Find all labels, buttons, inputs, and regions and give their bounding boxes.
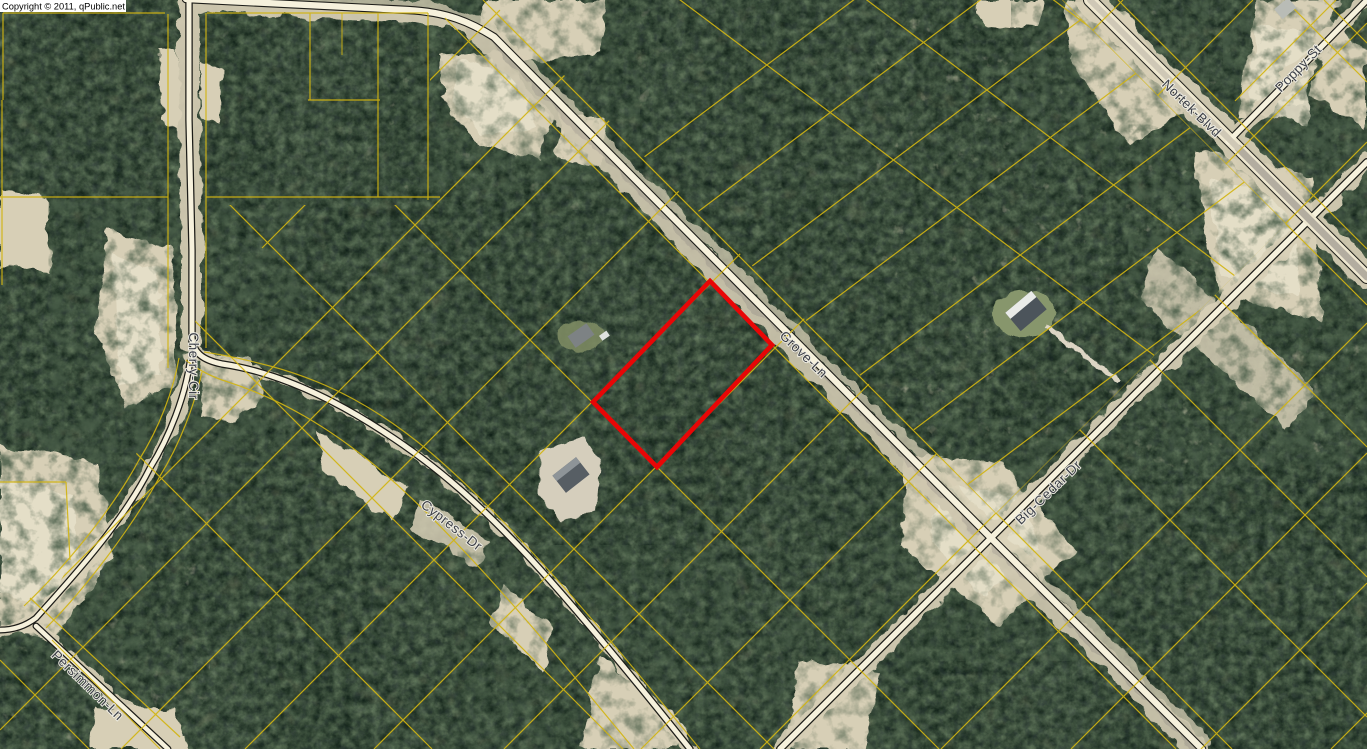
svg-text:Cherry-Cir: Cherry-Cir <box>186 332 201 399</box>
svg-text:Copyright © 2011, qPublic.net: Copyright © 2011, qPublic.net <box>2 2 125 12</box>
